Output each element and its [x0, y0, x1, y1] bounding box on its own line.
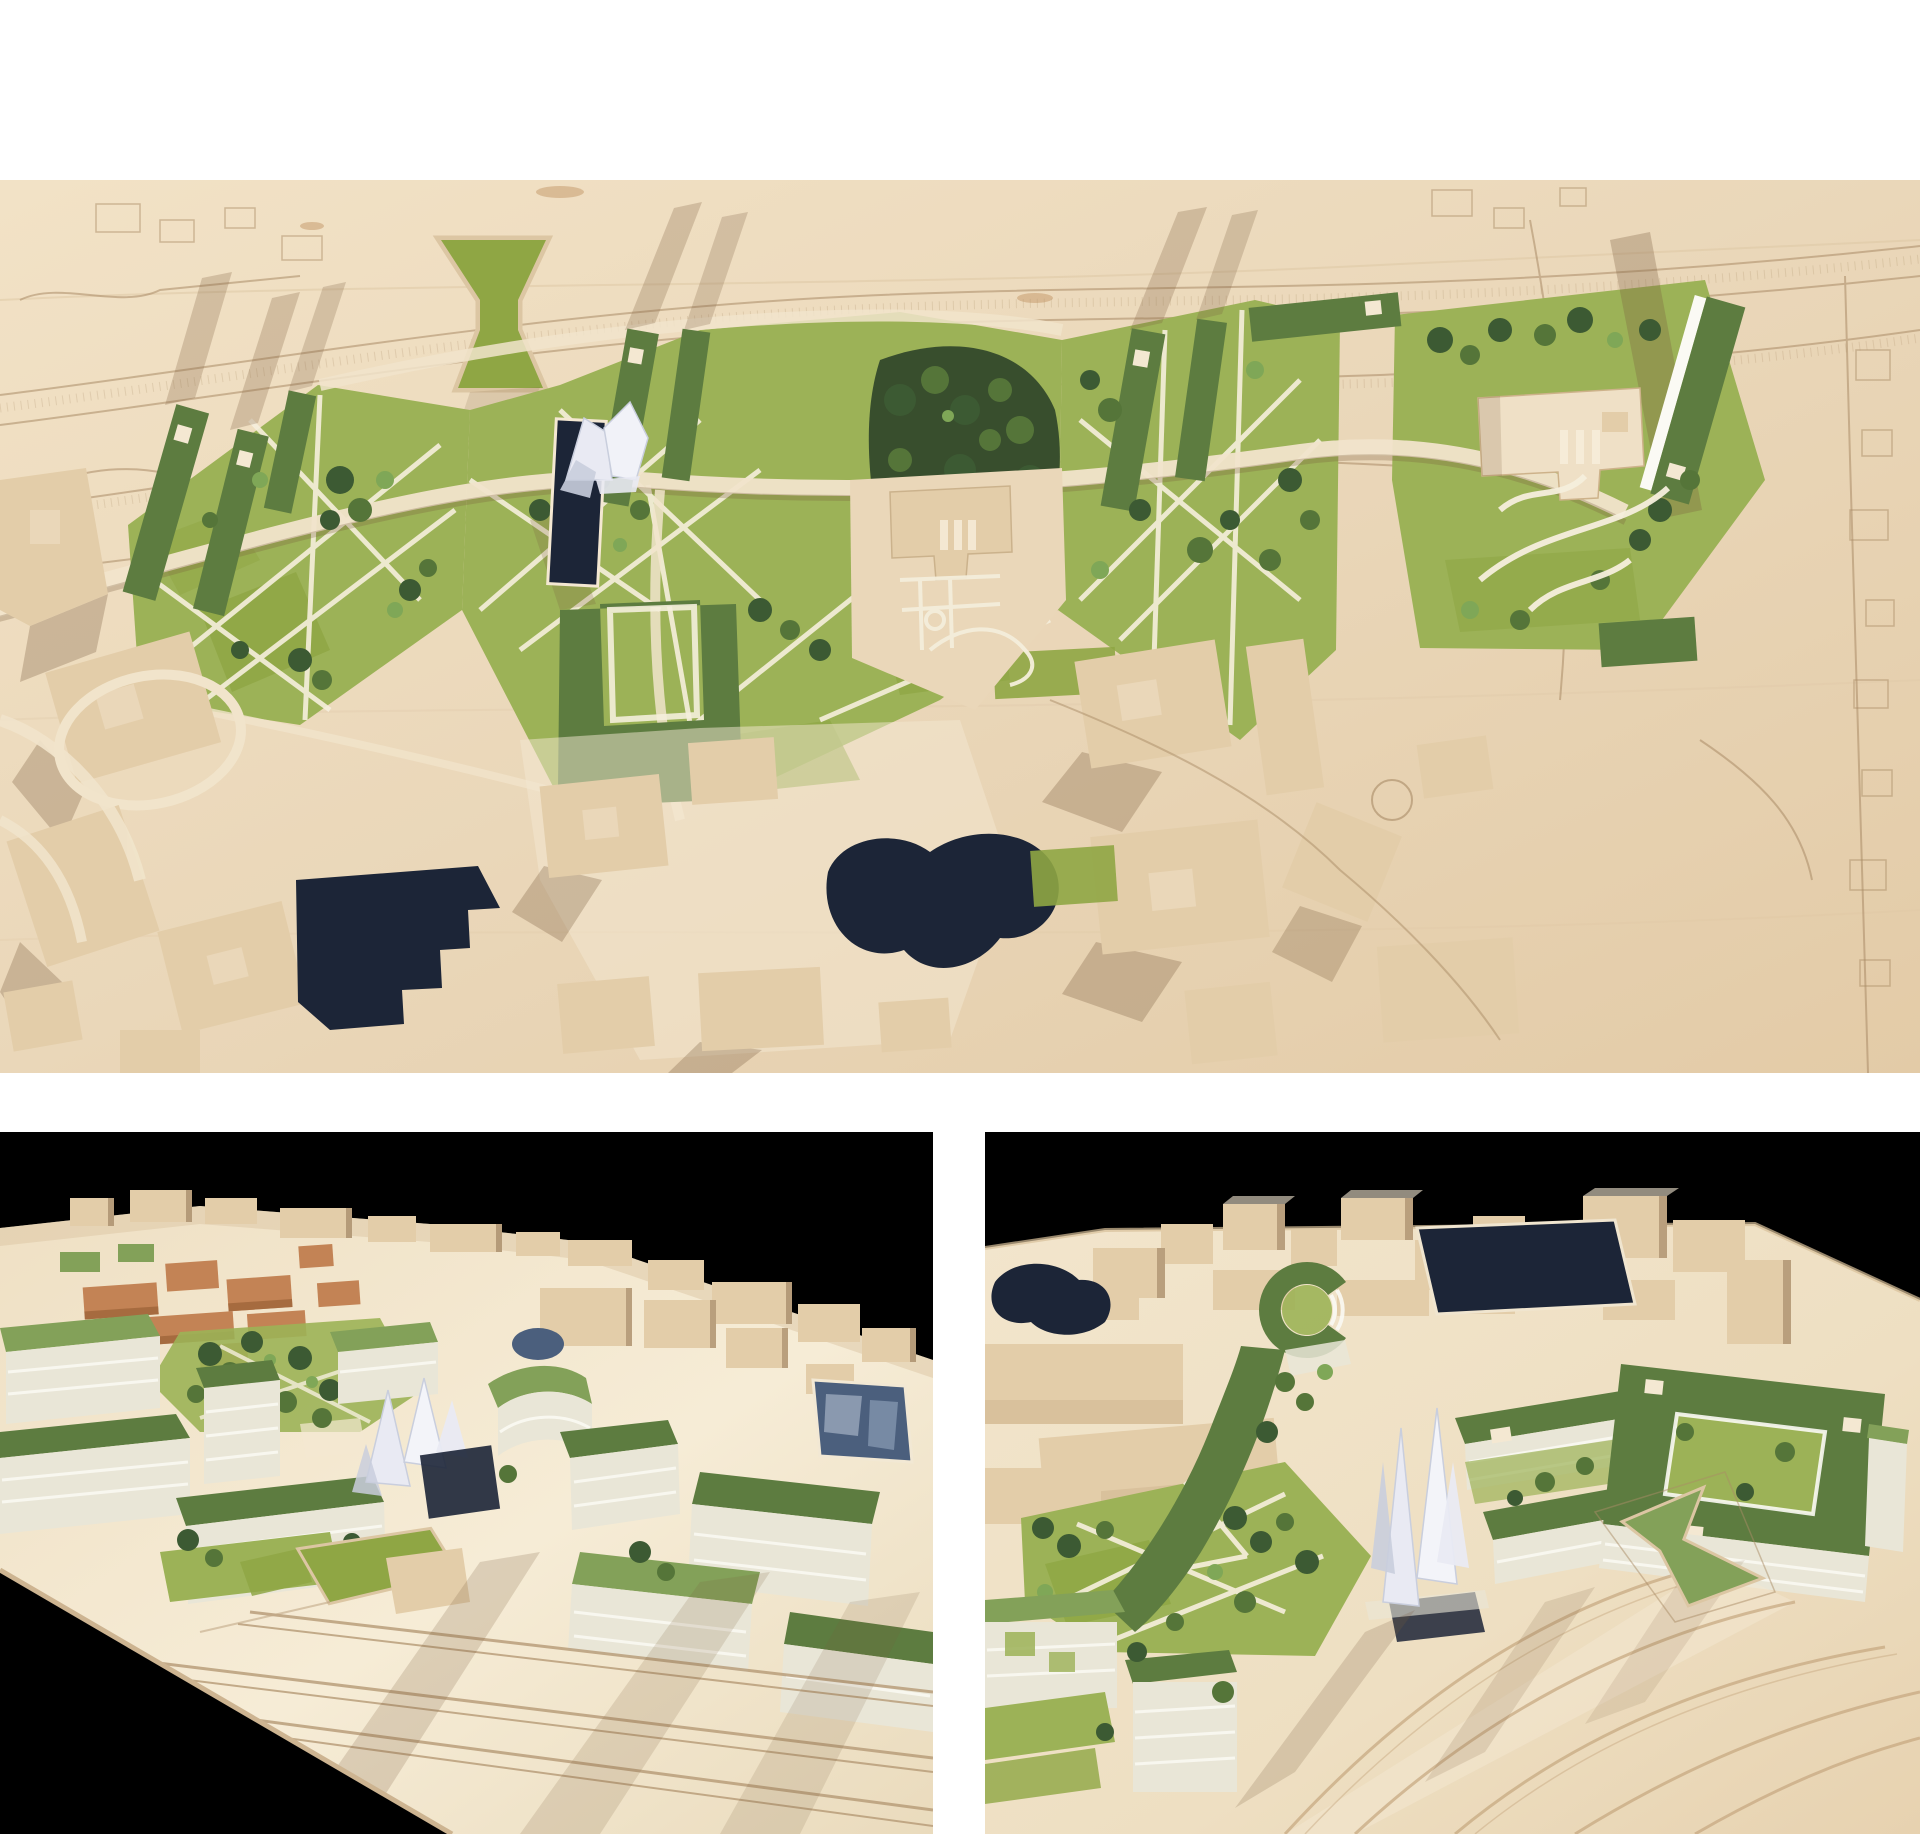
slab-left-a [0, 1314, 160, 1424]
photo-perspective-east [985, 1132, 1920, 1834]
slab-centre-e [560, 1420, 680, 1530]
perspective-east-illustration [985, 1132, 1920, 1834]
aerial-illustration [0, 180, 1920, 1073]
slab-left-b [0, 1414, 190, 1534]
slab-tower-c [196, 1360, 280, 1484]
reflective-pool [813, 1380, 912, 1462]
photo-board [0, 0, 1920, 1834]
dark-canal [420, 1445, 500, 1518]
photo-aerial-top-view [0, 180, 1920, 1073]
photo-perspective-west [0, 1132, 933, 1834]
green-plaza-patch [1030, 845, 1118, 907]
round-pond [512, 1328, 564, 1360]
square-navy-basin [1417, 1220, 1635, 1314]
courtyard-complex [1599, 1364, 1909, 1602]
perspective-west-illustration [0, 1132, 933, 1834]
